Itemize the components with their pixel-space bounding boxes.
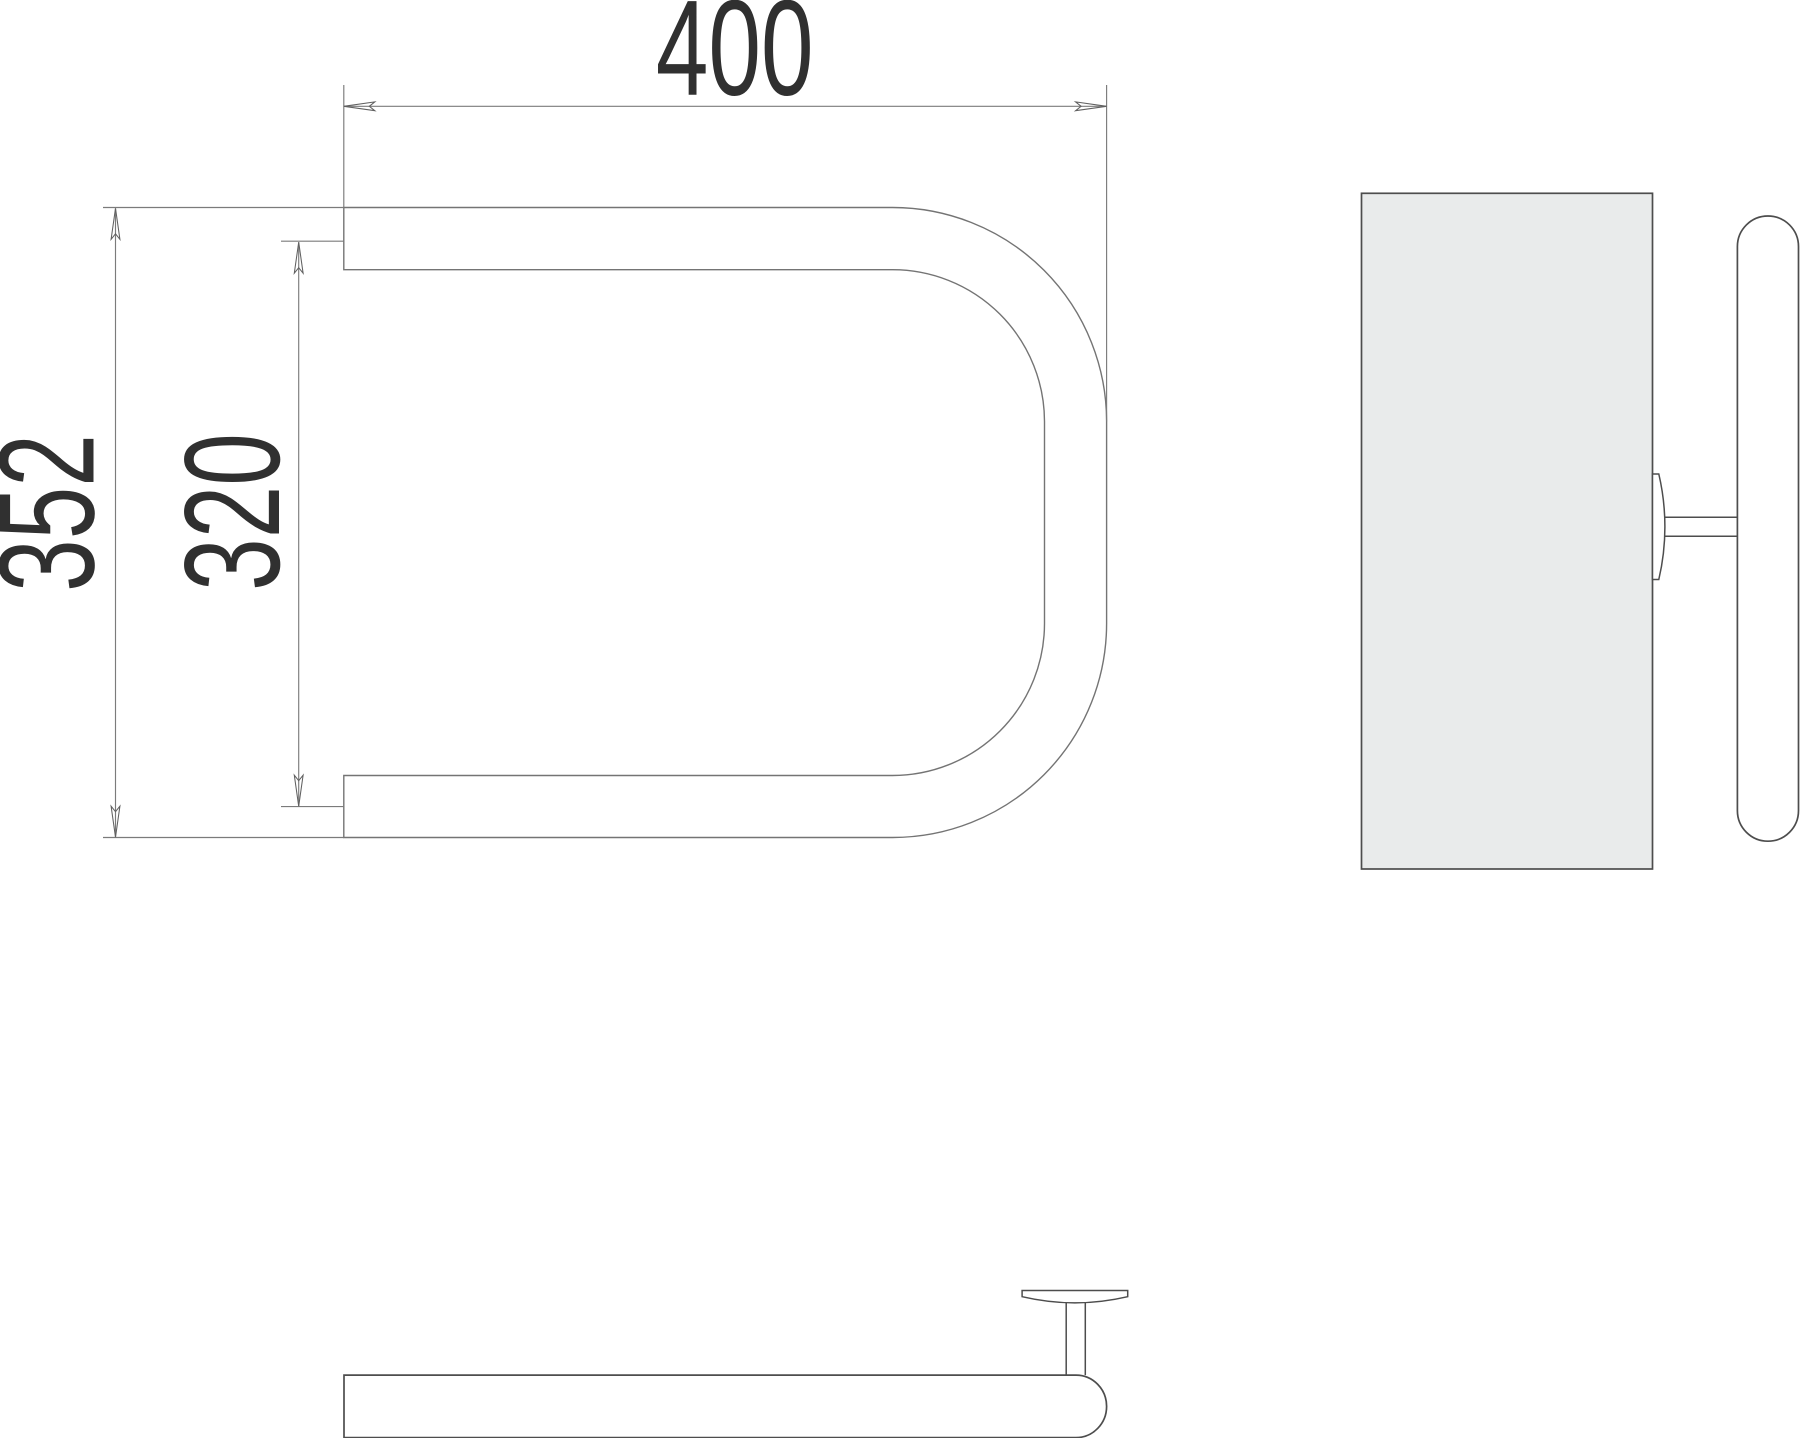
svg-text:352: 352 bbox=[0, 434, 123, 592]
svg-text:320: 320 bbox=[156, 433, 308, 591]
svg-text:400: 400 bbox=[656, 0, 814, 124]
